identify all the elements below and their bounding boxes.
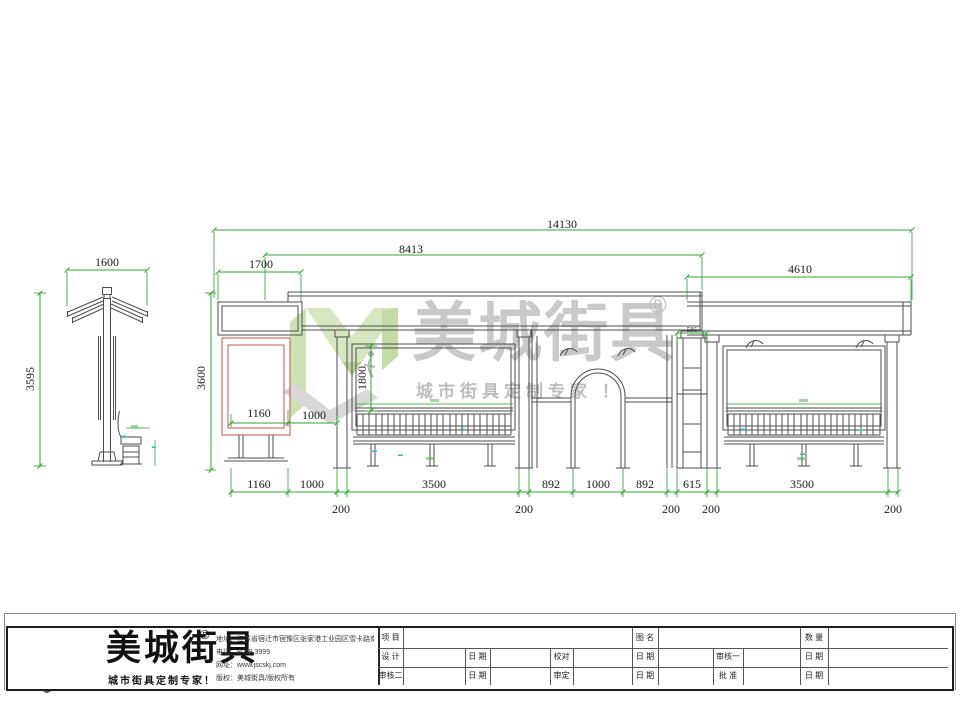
side-view [68,288,148,466]
dim-chain-0: 1160 [247,478,271,490]
sheet-left-border [4,613,5,690]
dim-overall-width: 14130 [547,218,577,230]
table-label-project: 项 目 [378,633,403,643]
dim-post-1: 200 [515,503,533,515]
dim-post-2: 200 [662,503,680,515]
dim-elevation-height: 3600 [195,366,207,390]
table-label-ratify: 批 准 [713,671,743,681]
table-label-date: 日 期 [800,652,828,662]
table-label-date: 日 期 [800,671,828,681]
drawing-canvas [0,0,960,704]
dim-left-canopy: 1700 [249,258,273,270]
cad-sheet: 美城街具 ® 城市街具定制专家 ！ [0,0,960,704]
dim-side-width: 1600 [95,256,119,268]
table-label-approve: 审定 [550,671,573,681]
contact-phone: 电话：8088 3999 [216,646,374,659]
brand-slogan: 城市街具定制专家！ [108,672,216,687]
dim-ladder-width: 585 [687,327,698,334]
table-label-date: 日 期 [632,652,658,662]
table-label-proof: 校对 [550,652,573,662]
sheet-right-border [955,613,956,690]
contact-info: 地址：江苏省宿迁市宿豫区张家港工业园区雪卡路南侧1号 电话：8088 3999 … [216,633,374,685]
table-label-qty: 数 量 [800,633,828,643]
dim-opening-height: 1800 [356,366,368,390]
dim-chain-1: 1000 [300,478,324,490]
dimension-lines [34,228,915,498]
contact-website: 网址：www.jscskj.com [216,659,374,672]
dim-chain-2: 3500 [422,478,446,490]
contact-address: 地址：江苏省宿迁市宿豫区张家港工业园区雪卡路南侧1号 [216,633,374,646]
sign-board [222,338,290,435]
table-label-design: 设 计 [378,652,403,662]
dim-chain-6: 615 [683,478,701,490]
table-label-date: 日 期 [465,671,490,681]
dim-chain-3: 892 [542,478,560,490]
table-label-date: 日 期 [465,652,490,662]
table-label-drawing: 图 名 [632,633,658,643]
table-label-review1: 审核一 [713,652,743,662]
dim-sign-offset: 1000 [302,409,326,421]
sheet-divider-line [4,613,956,614]
dim-post-4: 200 [884,503,902,515]
dim-chain-4: 1000 [586,478,610,490]
dim-chain-7: 3500 [790,478,814,490]
table-label-date: 日 期 [632,671,658,681]
registered-icon: ® [200,627,210,642]
dim-chain-5: 892 [636,478,654,490]
watermark-logo [283,308,398,424]
dim-sign-width: 1160 [247,407,271,419]
dim-upper-width: 8413 [399,243,423,255]
dim-side-height: 3595 [24,367,36,391]
contact-copyright: 版权：美城街具/版权所有 [216,672,374,685]
dim-post-0: 200 [332,503,350,515]
dim-right-canopy: 4610 [788,263,812,275]
dim-post-3: 200 [702,503,720,515]
table-label-review2: 审核二 [378,671,403,681]
